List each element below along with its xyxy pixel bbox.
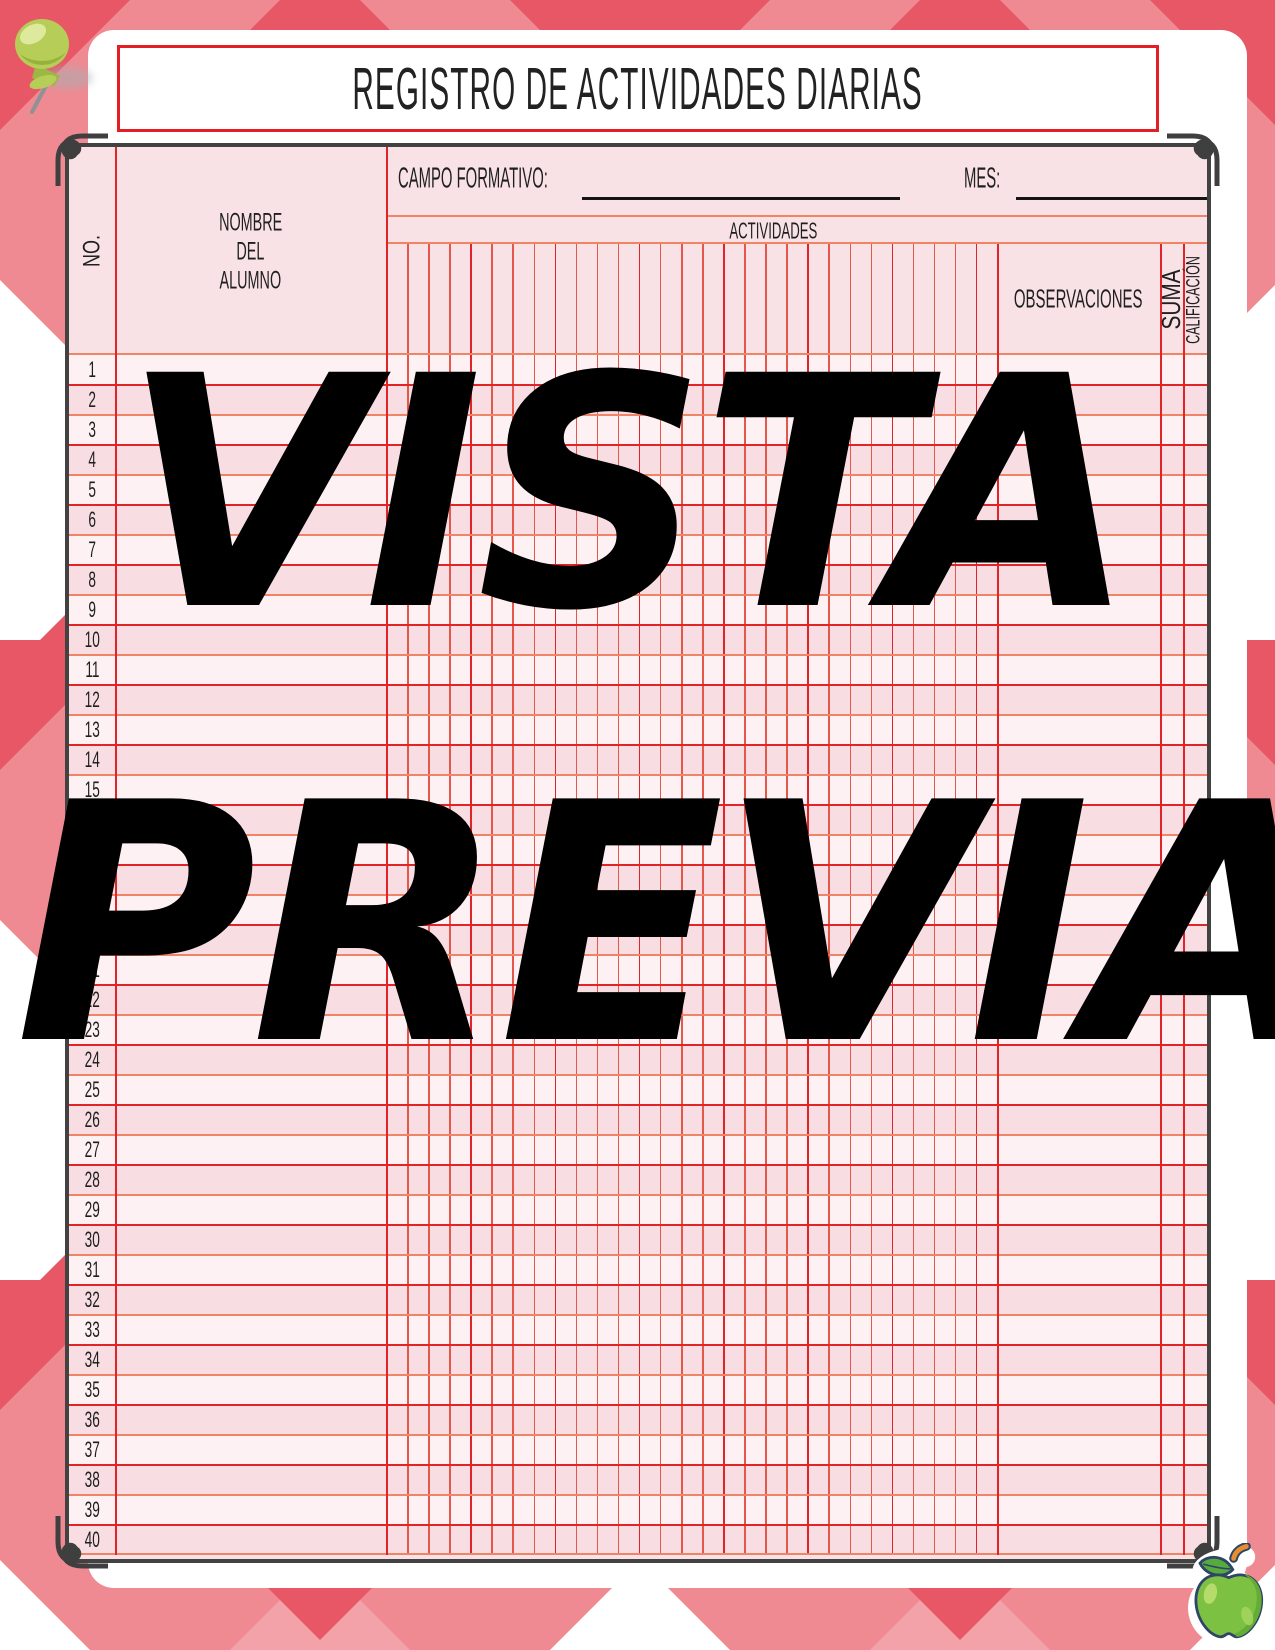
watermark-line1: VISTA (122, 335, 1130, 655)
row-separator-line (69, 684, 1207, 686)
row-number: 10 (69, 625, 115, 655)
row-separator-line (69, 1344, 1207, 1346)
campo-formativo-label: CAMPO FORMATIVO: (398, 162, 548, 195)
row-number: 11 (69, 655, 115, 685)
row-separator-line (69, 1164, 1207, 1166)
row-separator-line (69, 1404, 1207, 1406)
column-header-sum: SUMA (1160, 244, 1183, 355)
row-number: 37 (69, 1435, 115, 1465)
row-separator-line (69, 1434, 1207, 1436)
row-number: 12 (69, 685, 115, 715)
corner-flourish-icon (46, 1516, 108, 1578)
watermark-line2: PREVIA (15, 760, 1275, 1090)
row-separator-line (69, 1464, 1207, 1466)
push-pin-icon (2, 6, 102, 124)
row-number: 29 (69, 1195, 115, 1225)
formative-field-row: CAMPO FORMATIVO: MES: (386, 147, 1207, 217)
corner-flourish-icon (1167, 124, 1229, 186)
worksheet-preview: REGISTRO DE ACTIVIDADES DIARIAS 12345678… (0, 0, 1275, 1650)
grade-label: CALIFICACIÓN (1184, 256, 1206, 344)
row-number: 4 (69, 445, 115, 475)
row-number: 5 (69, 475, 115, 505)
column-header-no-label: NO. (78, 235, 106, 267)
row-number: 35 (69, 1375, 115, 1405)
corner-flourish-icon (46, 124, 108, 186)
row-number: 36 (69, 1405, 115, 1435)
row-number: 8 (69, 565, 115, 595)
row-separator-line (69, 1553, 1207, 1555)
row-number: 31 (69, 1255, 115, 1285)
row-number: 38 (69, 1465, 115, 1495)
row-separator-line (69, 1374, 1207, 1376)
row-number: 33 (69, 1315, 115, 1345)
campo-formativo-blank-line (582, 197, 900, 200)
column-header-grade: CALIFICACIÓN (1183, 244, 1207, 355)
row-separator-line (69, 1134, 1207, 1136)
column-header-activities: ACTIVIDADES (386, 217, 1207, 244)
row-number: 9 (69, 595, 115, 625)
row-separator-line (69, 1494, 1207, 1496)
row-separator-line (69, 1284, 1207, 1286)
row-number: 3 (69, 415, 115, 445)
title-banner: REGISTRO DE ACTIVIDADES DIARIAS (117, 45, 1159, 132)
row-number: 1 (69, 355, 115, 385)
green-apple-icon (1184, 1543, 1272, 1649)
row-number: 27 (69, 1135, 115, 1165)
row-separator-line (69, 1224, 1207, 1226)
row-number: 34 (69, 1345, 115, 1375)
mes-label: MES: (964, 162, 1000, 195)
activities-label: ACTIVIDADES (729, 217, 817, 244)
row-separator-line (69, 1254, 1207, 1256)
row-separator-line (69, 1194, 1207, 1196)
row-number: 32 (69, 1285, 115, 1315)
row-number: 28 (69, 1165, 115, 1195)
student-name-line2: DEL (236, 236, 264, 266)
row-separator-line (69, 1524, 1207, 1526)
row-separator-line (69, 1314, 1207, 1316)
row-number: 2 (69, 385, 115, 415)
row-number: 30 (69, 1225, 115, 1255)
row-number: 7 (69, 535, 115, 565)
mes-blank-line (1016, 197, 1207, 200)
row-number: 6 (69, 505, 115, 535)
student-name-line3: ALUMNO (220, 265, 282, 295)
page-title: REGISTRO DE ACTIVIDADES DIARIAS (353, 54, 923, 122)
student-name-line1: NOMBRE (219, 207, 282, 237)
row-separator-line (69, 714, 1207, 716)
